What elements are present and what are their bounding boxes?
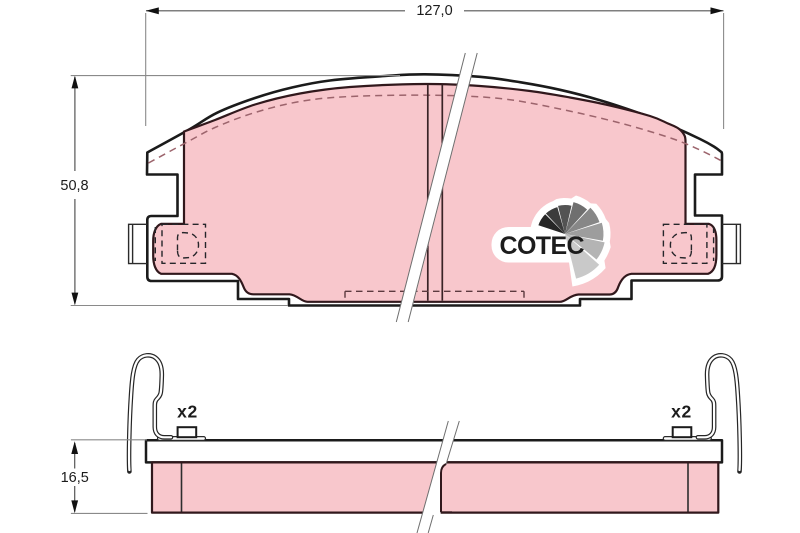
svg-text:x2: x2 <box>177 402 198 422</box>
svg-text:127,0: 127,0 <box>416 3 452 19</box>
svg-text:16,5: 16,5 <box>61 470 89 486</box>
svg-text:50,8: 50,8 <box>60 178 88 194</box>
svg-text:x2: x2 <box>671 402 692 422</box>
svg-text:COTEC: COTEC <box>500 232 585 260</box>
